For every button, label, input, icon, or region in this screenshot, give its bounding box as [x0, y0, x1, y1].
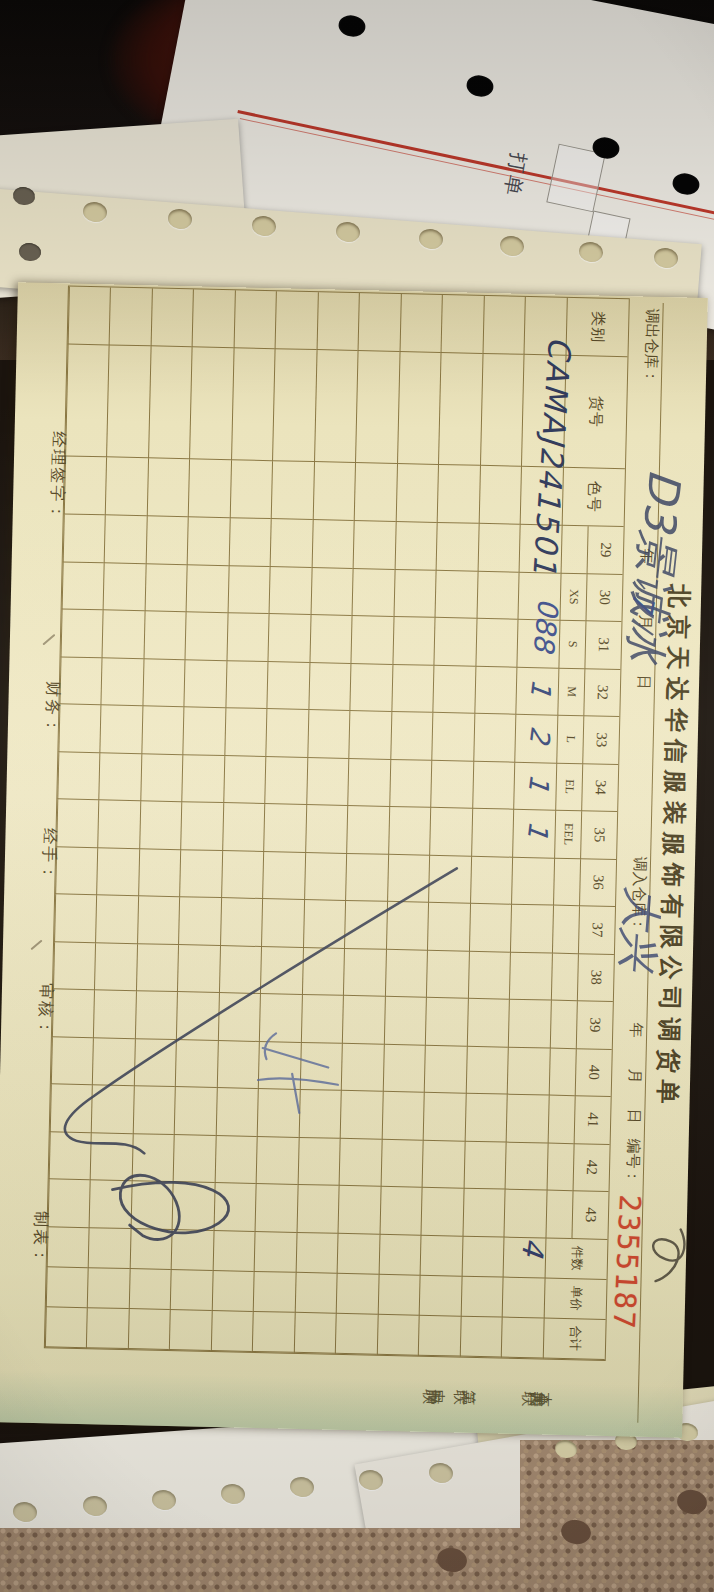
table-cell [311, 568, 354, 616]
table-cell [151, 288, 194, 347]
outbound-year-label: 年 [637, 548, 656, 563]
table-cell [45, 1307, 87, 1348]
table-cell [426, 950, 469, 998]
table-cell [387, 854, 430, 902]
table-cell [441, 295, 484, 354]
table-cell [187, 517, 230, 565]
table-cell [389, 759, 432, 807]
header-cell-40: 40 [575, 1049, 612, 1097]
table-cell [377, 1314, 419, 1355]
table-cell [338, 1186, 381, 1234]
table-cell [354, 463, 397, 522]
table-cell [182, 755, 225, 803]
header-cell-41: 41 [574, 1096, 611, 1144]
table-cell [220, 898, 263, 946]
table-cell [253, 1271, 295, 1312]
table-cell [234, 290, 277, 349]
table-cell [356, 351, 400, 464]
footer-label-2: 经手： [37, 828, 59, 882]
table-cell [148, 346, 192, 459]
copy-note-line2: 第二联：电脑联 [446, 1389, 489, 1406]
table-cell [61, 609, 104, 657]
table-cell [477, 571, 520, 619]
table-cell [65, 344, 109, 457]
table-cell [55, 847, 98, 895]
table-cell [57, 752, 100, 800]
table-cell [211, 1310, 253, 1351]
table-cell [46, 1267, 88, 1308]
table-cell [172, 1182, 215, 1230]
table-cell [388, 807, 431, 855]
table-cell [430, 808, 473, 856]
table-cell [353, 521, 396, 569]
table-cell [265, 757, 308, 805]
outbound-warehouse-label: 调出仓库： [641, 308, 662, 383]
table-cell [89, 1180, 132, 1228]
table-cell [419, 1275, 461, 1316]
table-cell [391, 664, 434, 712]
table-cell [136, 944, 179, 992]
table-cell [171, 1230, 213, 1271]
table-cell [352, 568, 395, 616]
table-cell [259, 994, 302, 1042]
table-cell [508, 1000, 551, 1048]
header-cell-38: 38 [577, 954, 614, 1002]
header-cell-EEL: EEL [554, 811, 581, 859]
table-cell [260, 947, 303, 995]
table-cell [139, 801, 182, 849]
footer-label-4: 制表： [29, 1211, 51, 1265]
table-cell [396, 464, 439, 523]
table-cell [266, 709, 309, 757]
table-cell [386, 902, 429, 950]
table-cell [96, 895, 139, 943]
table-cell [344, 901, 387, 949]
table-cell [101, 658, 144, 706]
table-cell [466, 1046, 509, 1094]
table-cell [418, 1315, 460, 1356]
table-cell [358, 293, 401, 352]
table-cell [551, 953, 578, 1001]
header-cell-XS: XS [559, 573, 586, 621]
table-cell [561, 526, 588, 574]
header-cell-34: 34 [581, 764, 618, 812]
table-cell [269, 567, 312, 615]
table-cell [307, 710, 350, 758]
table-cell [176, 992, 219, 1040]
table-cell [465, 1094, 508, 1142]
table-cell [464, 1141, 507, 1189]
table-cell [380, 1187, 423, 1235]
table-cell [56, 799, 99, 847]
copy-note: 本单共四联第二联：电脑联 [446, 1387, 565, 1409]
table-cell [62, 562, 105, 610]
table-cell [351, 616, 394, 664]
table-cell [421, 1188, 464, 1236]
table-cell [300, 1042, 343, 1090]
table-cell [437, 465, 480, 524]
footer-label-3: 审核： [34, 983, 56, 1037]
table-cell [144, 611, 187, 659]
table-cell [385, 949, 428, 997]
table-cell [183, 707, 226, 755]
table-cell [517, 620, 560, 668]
table-cell [131, 1181, 174, 1229]
table-cell [226, 613, 269, 661]
table-cell [317, 292, 360, 351]
table-cell [257, 1089, 300, 1137]
table-cell [335, 1313, 377, 1354]
table-cell [306, 758, 349, 806]
table-cell [296, 1232, 338, 1273]
table-cell [431, 760, 474, 808]
table-cell [553, 858, 580, 906]
table-cell [264, 804, 307, 852]
header-cell-色号: 色号 [562, 468, 625, 527]
table-cell [228, 566, 271, 614]
table-cell [54, 894, 97, 942]
table-cell [268, 614, 311, 662]
table-cell [51, 1037, 94, 1085]
header-cell-S: S [558, 621, 585, 669]
table-cell [346, 853, 389, 901]
table-cell [435, 570, 478, 618]
table-cell [301, 995, 344, 1043]
outbound-month-label: 月 [635, 614, 654, 629]
table-cell [379, 1234, 421, 1275]
table-cell [302, 947, 345, 995]
table-cell [215, 1136, 258, 1184]
table-cell [170, 1270, 212, 1311]
table-cell [294, 1312, 336, 1353]
table-cell [48, 1179, 91, 1227]
table-cell [190, 347, 234, 460]
table-cell [550, 1001, 577, 1049]
header-cell-EL: EL [555, 763, 582, 811]
table-cell [512, 857, 555, 905]
header-cell-32: 32 [583, 669, 620, 717]
table-cell [475, 619, 518, 667]
table-cell [129, 1269, 171, 1310]
table-cell [53, 942, 96, 990]
table-cell [216, 1088, 259, 1136]
header-cell-42: 42 [573, 1144, 610, 1192]
table-cell [140, 754, 183, 802]
table-cell [518, 572, 561, 620]
header-cell-件数: 件数 [545, 1238, 608, 1279]
table-cell [186, 565, 229, 613]
table-cell [92, 1038, 135, 1086]
table-cell [217, 1041, 260, 1089]
inbound-warehouse-label: 调入仓库： [628, 856, 649, 931]
table-cell [135, 991, 178, 1039]
table-cell [138, 849, 181, 897]
table-cell [224, 708, 267, 756]
table-cell [90, 1133, 133, 1181]
table-cell [270, 519, 313, 567]
table-cell [347, 806, 390, 854]
table-cell [52, 989, 95, 1037]
table-cell [263, 852, 306, 900]
table-cell [478, 524, 521, 572]
transfer-form: 北京天达华信服装服饰有限公司调货单 调出仓库： 年 月 日 调入仓库： 年 月 … [0, 282, 708, 1437]
table-cell [429, 855, 472, 903]
table-cell [91, 1085, 134, 1133]
table-cell [432, 713, 475, 761]
table-cell [94, 943, 137, 991]
table-cell [130, 1229, 172, 1270]
table-cell [102, 610, 145, 658]
table-cell [509, 952, 552, 1000]
table-cell [58, 704, 101, 752]
table-cell [142, 659, 185, 707]
table-cell [181, 802, 224, 850]
table-cell [63, 514, 106, 562]
table-cell [384, 997, 427, 1045]
table-cell [231, 348, 275, 461]
table-cell [173, 1135, 216, 1183]
table-cell [174, 1087, 217, 1135]
table-cell [436, 523, 479, 571]
table-cell [548, 1096, 575, 1144]
table-cell [390, 712, 433, 760]
copy-note-line1: 本单共四联 [545, 1392, 565, 1408]
table-cell [185, 612, 228, 660]
table-cell [343, 948, 386, 996]
table-cell [420, 1235, 462, 1276]
table-cell [392, 617, 435, 665]
table-cell [473, 714, 516, 762]
table-cell [134, 1039, 177, 1087]
footer-label-0: 经理签字： [46, 431, 69, 521]
header-cell-39: 39 [576, 1001, 613, 1049]
outbound-day-label: 日 [634, 674, 653, 689]
table-cell [49, 1132, 92, 1180]
table-cell [514, 762, 557, 810]
inbound-day-label: 日 [624, 1108, 643, 1123]
table-cell [100, 705, 143, 753]
table-cell [99, 753, 142, 801]
table-cell [461, 1276, 503, 1317]
table-cell [382, 1092, 425, 1140]
table-cell [137, 896, 180, 944]
table-cell [295, 1272, 337, 1313]
table-cell [212, 1270, 254, 1311]
header-cell-单价: 单价 [544, 1278, 607, 1319]
table-cell [147, 458, 190, 517]
header-cell-35: 35 [580, 811, 617, 859]
header-cell-货号: 货号 [563, 356, 628, 469]
header-cell-类别: 类别 [565, 298, 628, 357]
table-cell [47, 1227, 89, 1268]
table-cell [471, 809, 514, 857]
table-cell [303, 900, 346, 948]
table-cell [180, 850, 223, 898]
table-cell [383, 1044, 426, 1092]
table-cell [433, 665, 476, 713]
table-cell [267, 662, 310, 710]
table-cell [460, 1316, 502, 1357]
table-cell [133, 1086, 176, 1134]
table-cell [128, 1309, 170, 1350]
header-cell-L: L [556, 716, 583, 764]
table-cell [262, 899, 305, 947]
table-cell [169, 1310, 211, 1351]
table-cell [467, 999, 510, 1047]
table-cell [469, 904, 512, 952]
table-cell [271, 461, 314, 520]
footer-label-1: 财务： [41, 681, 63, 735]
table-cell [145, 564, 188, 612]
table-cell [336, 1273, 378, 1314]
table-cell [218, 993, 261, 1041]
table-cell [299, 1090, 342, 1138]
table-cell [298, 1137, 341, 1185]
table-cell [521, 355, 565, 468]
table-cell [308, 663, 351, 711]
table-cell [337, 1233, 379, 1274]
inbound-year-label: 年 [626, 1022, 645, 1037]
table-cell [422, 1140, 465, 1188]
table-cell [513, 810, 556, 858]
table-cell [98, 800, 141, 848]
table-cell [103, 563, 146, 611]
table-cell [225, 661, 268, 709]
table-cell [254, 1231, 296, 1272]
table-cell [503, 1237, 545, 1278]
table-cell [64, 456, 107, 515]
table-cell [258, 1041, 301, 1089]
table-cell [397, 352, 441, 465]
carpet-corner [520, 1440, 714, 1592]
table-cell [309, 615, 352, 663]
table-cell [222, 803, 265, 851]
table-cell [221, 851, 264, 899]
table-cell [480, 354, 524, 467]
table-cell [400, 294, 443, 353]
table-cell [104, 515, 147, 563]
table-cell [179, 897, 222, 945]
table-cell [141, 706, 184, 754]
table-cell [348, 758, 391, 806]
table-cell [219, 946, 262, 994]
table-cell [214, 1183, 257, 1231]
table-cell [394, 569, 437, 617]
table-cell [381, 1139, 424, 1187]
table-cell [438, 353, 482, 466]
header-cell-M: M [557, 668, 584, 716]
table-cell [342, 996, 385, 1044]
header-cell-30: 30 [585, 574, 622, 622]
table-cell [184, 660, 227, 708]
table-cell [313, 462, 356, 521]
serial-number: 2355187 [607, 1194, 648, 1332]
table-cell [109, 287, 152, 346]
table-cell [552, 906, 579, 954]
header-cell-43: 43 [571, 1191, 608, 1239]
table-cell [252, 1311, 294, 1352]
table-cell [105, 457, 148, 516]
table-cell [520, 467, 563, 526]
header-cell-37: 37 [578, 906, 615, 954]
header-cell-31: 31 [584, 621, 621, 669]
table-cell [378, 1274, 420, 1315]
table-cell [507, 1047, 550, 1095]
table-cell [175, 1040, 218, 1088]
table-cell [501, 1317, 543, 1358]
table-cell [230, 460, 273, 519]
table-cell [424, 1045, 467, 1093]
inbound-month-label: 月 [625, 1068, 644, 1083]
table-cell [474, 666, 517, 714]
table-cell [314, 350, 358, 463]
table-cell [427, 903, 470, 951]
table-cell [88, 1228, 130, 1269]
table-cell [107, 345, 151, 458]
table-cell [312, 520, 355, 568]
table-cell [516, 667, 559, 715]
table-cell [425, 998, 468, 1046]
table-cell [434, 618, 477, 666]
header-cell-合计: 合计 [543, 1318, 606, 1359]
table-cell [502, 1277, 544, 1318]
table-cell [86, 1308, 128, 1349]
table-cell [483, 296, 526, 355]
header-cell-29: 29 [587, 526, 624, 574]
table-cell [213, 1230, 255, 1271]
table-cell [423, 1093, 466, 1141]
header-cell-36: 36 [579, 859, 616, 907]
table-cell [479, 466, 522, 525]
table-cell [59, 657, 102, 705]
serial-label: 编号： [623, 1138, 643, 1183]
table-cell [177, 945, 220, 993]
table-cell [305, 805, 348, 853]
table-cell [192, 289, 235, 348]
table-cell [349, 711, 392, 759]
table-cell [341, 1043, 384, 1091]
table-cell [524, 297, 567, 356]
table-cell [505, 1142, 548, 1190]
table-cell [468, 951, 511, 999]
table-cell [304, 852, 347, 900]
table-cell [132, 1134, 175, 1182]
table-cell [256, 1136, 299, 1184]
table-cell [519, 525, 562, 573]
table-cell [229, 518, 272, 566]
table-cell [340, 1091, 383, 1139]
table-cell [547, 1143, 574, 1191]
table-cell [146, 516, 189, 564]
photo-scene: 打单 北京天达华信服装服饰有限公司调货单 调出仓库： 年 月 日 调入仓库： 年… [0, 0, 714, 1592]
table-cell [68, 286, 111, 345]
header-cell-33: 33 [582, 716, 619, 764]
table-cell [506, 1095, 549, 1143]
table-cell [50, 1084, 93, 1132]
table-cell [470, 856, 513, 904]
table-cell [515, 715, 558, 763]
table-cell [275, 291, 318, 350]
table-cell [93, 990, 136, 1038]
table-cell [510, 905, 553, 953]
table-cell [462, 1189, 505, 1237]
table-cell [472, 761, 515, 809]
table-cell [223, 756, 266, 804]
table-cell [87, 1268, 129, 1309]
table-cell [188, 459, 231, 518]
table-cell [255, 1184, 298, 1232]
table-cell [339, 1138, 382, 1186]
